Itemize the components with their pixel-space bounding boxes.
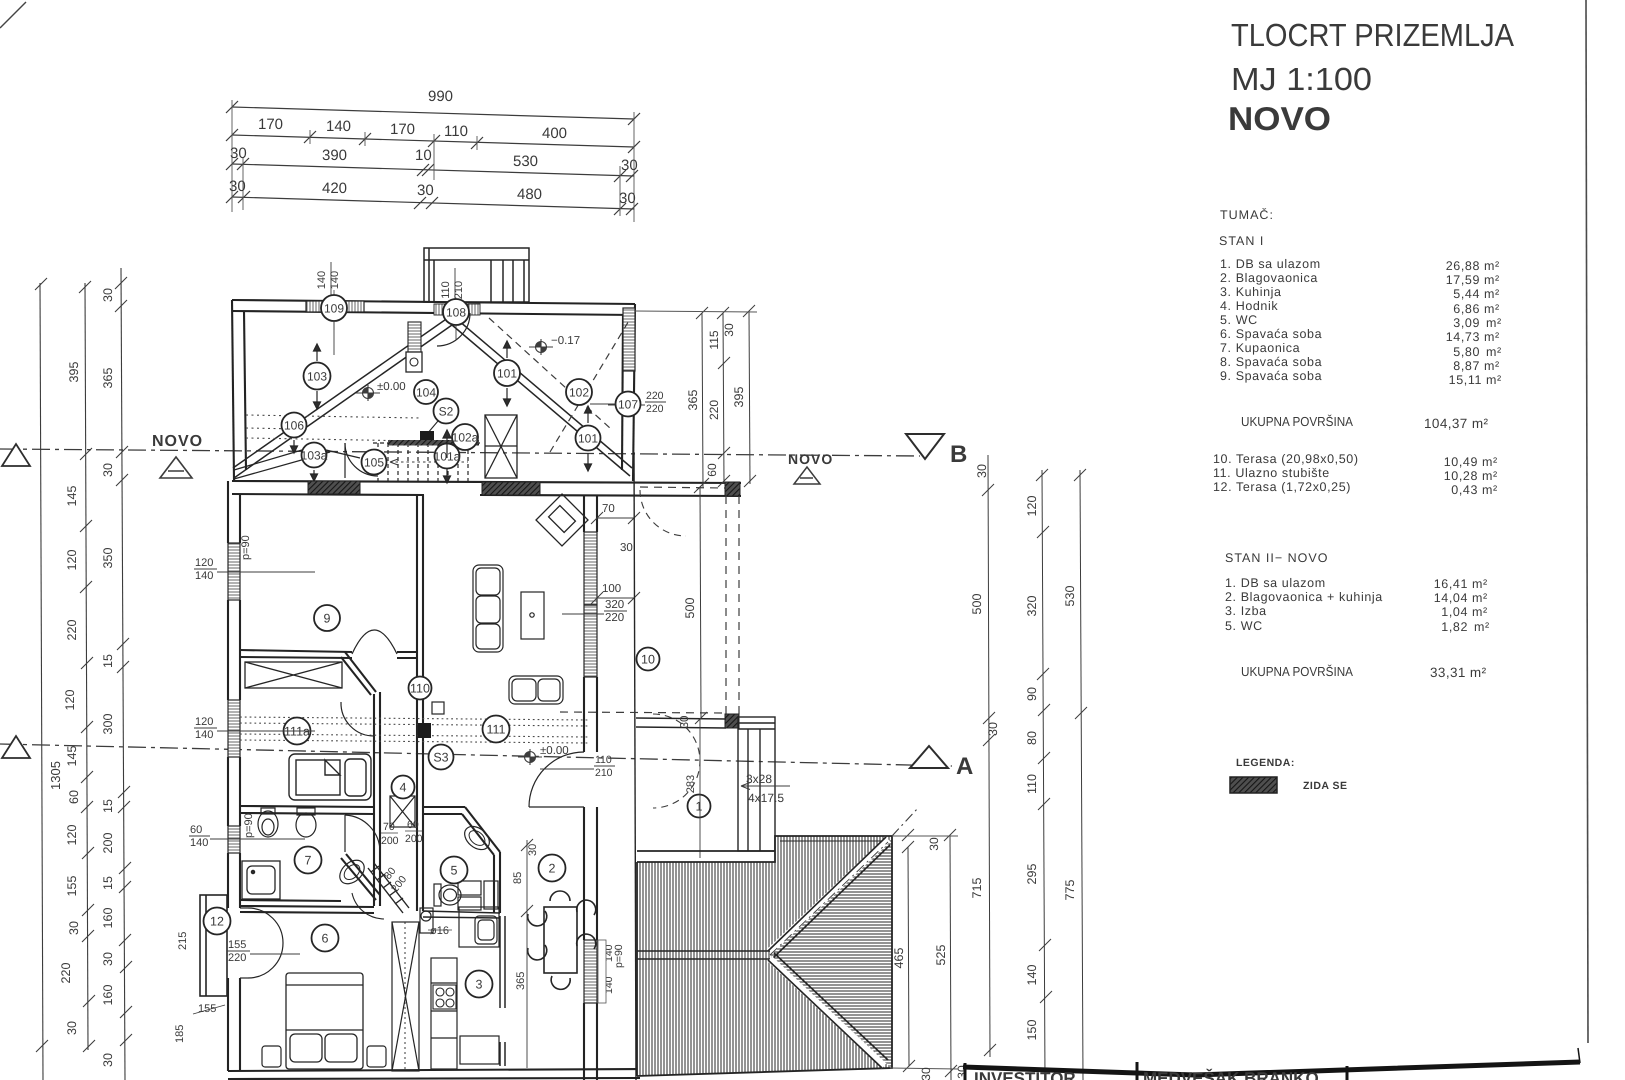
- svg-text:108: 108: [446, 306, 466, 320]
- svg-text:220: 220: [228, 952, 246, 964]
- svg-text:m²: m²: [1484, 287, 1500, 301]
- svg-text:S3: S3: [433, 751, 448, 765]
- svg-text:295: 295: [1025, 864, 1039, 885]
- svg-text:500: 500: [970, 594, 984, 615]
- svg-text:155: 155: [65, 876, 79, 897]
- svg-text:107: 107: [618, 398, 638, 412]
- svg-text:140: 140: [190, 837, 208, 849]
- svg-text:104,37 m²: 104,37 m²: [1424, 416, 1488, 431]
- svg-text:140: 140: [195, 729, 213, 741]
- svg-text:210: 210: [595, 767, 613, 779]
- svg-text:6. Spavaća soba: 6. Spavaća soba: [1220, 327, 1322, 341]
- svg-text:105: 105: [364, 456, 384, 470]
- svg-text:111a: 111a: [284, 725, 310, 739]
- svg-text:365: 365: [101, 368, 115, 389]
- svg-text:7: 7: [305, 854, 312, 868]
- svg-text:220: 220: [65, 620, 79, 641]
- svg-text:m²: m²: [1484, 273, 1500, 287]
- svg-text:5. WC: 5. WC: [1225, 619, 1263, 633]
- svg-text:200: 200: [405, 833, 423, 845]
- svg-text:30: 30: [101, 288, 115, 302]
- svg-text:3: 3: [476, 978, 483, 992]
- svg-text:70: 70: [602, 503, 615, 515]
- svg-text:NOVO: NOVO: [1228, 100, 1331, 137]
- svg-text:TUMAČ:: TUMAČ:: [1220, 208, 1274, 222]
- svg-text:4x17.5: 4x17.5: [748, 791, 784, 805]
- svg-text:140: 140: [326, 118, 351, 135]
- svg-text:−0.17: −0.17: [551, 335, 580, 347]
- svg-text:A: A: [956, 753, 973, 780]
- svg-text:30: 30: [65, 1021, 79, 1035]
- svg-text:NOVO: NOVO: [152, 433, 203, 450]
- svg-text:7. Kupaonica: 7. Kupaonica: [1220, 341, 1300, 355]
- svg-text:140: 140: [195, 570, 213, 582]
- svg-text:390: 390: [322, 147, 347, 164]
- svg-text:110: 110: [1025, 774, 1039, 794]
- svg-text:140: 140: [316, 271, 328, 289]
- svg-text:30: 30: [527, 844, 539, 856]
- svg-text:85: 85: [512, 872, 524, 884]
- svg-text:m²: m²: [1486, 373, 1502, 387]
- svg-text:220: 220: [59, 963, 73, 984]
- svg-text:106: 106: [284, 419, 304, 433]
- svg-text:1. DB sa ulazom: 1. DB sa ulazom: [1225, 576, 1326, 590]
- svg-text:480: 480: [517, 186, 542, 203]
- svg-text:12: 12: [210, 915, 224, 929]
- svg-text:m²: m²: [1472, 591, 1488, 605]
- svg-text:300: 300: [101, 714, 115, 735]
- svg-text:101: 101: [578, 432, 598, 446]
- svg-text:26,88: 26,88: [1446, 259, 1480, 273]
- svg-text:B: B: [950, 441, 967, 468]
- svg-text:1305: 1305: [48, 761, 63, 790]
- svg-text:30: 30: [101, 463, 115, 477]
- svg-text:145: 145: [65, 486, 79, 507]
- svg-text:30: 30: [101, 1053, 115, 1067]
- svg-text:m²: m²: [1472, 577, 1488, 591]
- svg-text:MEDVEŠAK BRANKO: MEDVEŠAK BRANKO: [1143, 1068, 1319, 1080]
- svg-text:525: 525: [934, 945, 948, 966]
- svg-text:155: 155: [228, 939, 246, 951]
- svg-text:30: 30: [417, 182, 434, 199]
- svg-text:30: 30: [722, 323, 736, 337]
- svg-text:30: 30: [975, 464, 989, 478]
- svg-text:p=90: p=90: [243, 813, 255, 838]
- svg-text:6,86: 6,86: [1453, 302, 1480, 316]
- svg-text:15,11: 15,11: [1449, 373, 1482, 387]
- svg-text:715: 715: [970, 878, 984, 899]
- svg-text:160: 160: [101, 908, 115, 929]
- svg-text:1,82: 1,82: [1441, 620, 1468, 634]
- svg-text:420: 420: [322, 180, 347, 197]
- svg-text:283: 283: [685, 775, 697, 793]
- svg-text:16,41: 16,41: [1434, 577, 1468, 591]
- svg-text:INVESTITOR: INVESTITOR: [974, 1069, 1076, 1080]
- svg-text:109: 109: [324, 302, 344, 316]
- svg-text:220: 220: [646, 403, 664, 415]
- svg-text:m²: m²: [1484, 302, 1500, 316]
- svg-text:120: 120: [65, 550, 79, 571]
- svg-text:200: 200: [381, 835, 399, 847]
- svg-text:UKUPNA POVRŠINA: UKUPNA POVRŠINA: [1241, 664, 1353, 679]
- svg-text:60: 60: [190, 824, 202, 836]
- svg-text:2: 2: [549, 862, 556, 876]
- svg-text:102: 102: [569, 386, 589, 400]
- svg-text:±0.00: ±0.00: [377, 381, 406, 393]
- svg-text:155: 155: [198, 1003, 216, 1015]
- svg-text:200: 200: [101, 833, 115, 854]
- svg-text:160: 160: [101, 985, 115, 1006]
- svg-text:m²: m²: [1484, 259, 1500, 273]
- svg-text:500: 500: [683, 598, 697, 619]
- svg-text:m²: m²: [1486, 345, 1502, 359]
- svg-text:5: 5: [451, 864, 458, 878]
- svg-text:110: 110: [595, 754, 612, 766]
- svg-text:30: 30: [621, 157, 638, 174]
- svg-text:8,87: 8,87: [1453, 359, 1480, 373]
- svg-text:150: 150: [1025, 1020, 1039, 1041]
- svg-text:MJ 1:100: MJ 1:100: [1231, 61, 1372, 97]
- svg-text:30: 30: [927, 837, 941, 851]
- svg-text:30: 30: [679, 716, 691, 729]
- svg-text:0,43: 0,43: [1451, 483, 1478, 497]
- svg-text:1,04: 1,04: [1441, 605, 1468, 619]
- svg-text:395: 395: [67, 362, 81, 383]
- svg-text:TLOCRT PRIZEMLJA: TLOCRT PRIZEMLJA: [1231, 17, 1515, 53]
- svg-text:102a: 102a: [452, 431, 479, 445]
- svg-text:70: 70: [383, 821, 395, 833]
- svg-text:10: 10: [415, 147, 432, 164]
- svg-text:30: 30: [229, 178, 246, 195]
- svg-text:30: 30: [101, 952, 115, 966]
- svg-text:4. Hodnik: 4. Hodnik: [1220, 299, 1278, 313]
- svg-text:9. Spavaća soba: 9. Spavaća soba: [1220, 369, 1322, 383]
- svg-text:5,44: 5,44: [1453, 287, 1480, 301]
- svg-text:2. Blagovaonica: 2. Blagovaonica: [1220, 271, 1318, 285]
- svg-text:m²: m²: [1486, 316, 1502, 330]
- svg-text:m²: m²: [1482, 469, 1498, 483]
- svg-text:215: 215: [177, 932, 189, 950]
- svg-text:10: 10: [641, 653, 655, 667]
- svg-text:STAN I: STAN I: [1219, 234, 1264, 248]
- svg-text:103a: 103a: [301, 449, 328, 463]
- svg-text:m²: m²: [1484, 330, 1500, 344]
- svg-text:p=90: p=90: [613, 944, 625, 968]
- svg-text:3x28: 3x28: [746, 772, 772, 786]
- svg-text:m²: m²: [1482, 483, 1498, 497]
- svg-text:400: 400: [542, 125, 567, 142]
- svg-text:9: 9: [324, 612, 331, 626]
- svg-text:120: 120: [195, 716, 213, 728]
- svg-text:395: 395: [732, 387, 746, 408]
- svg-text:140: 140: [1025, 965, 1039, 986]
- svg-text:103: 103: [307, 370, 327, 384]
- svg-text:60: 60: [705, 463, 719, 477]
- svg-text:111: 111: [486, 723, 505, 737]
- svg-text:10. Terasa (20,98x0,50): 10. Terasa (20,98x0,50): [1213, 452, 1359, 466]
- svg-text:8. Spavaća soba: 8. Spavaća soba: [1220, 355, 1322, 369]
- svg-text:UKUPNA POVRŠINA: UKUPNA POVRŠINA: [1241, 414, 1353, 429]
- svg-text:320: 320: [1025, 596, 1039, 617]
- svg-text:120: 120: [195, 557, 213, 569]
- svg-text:220: 220: [707, 400, 721, 420]
- svg-text:6: 6: [322, 932, 329, 946]
- svg-text:33,31 m²: 33,31 m²: [1430, 665, 1487, 680]
- svg-text:90: 90: [1025, 687, 1039, 701]
- svg-text:ZIDA SE: ZIDA SE: [1303, 780, 1348, 792]
- svg-text:100: 100: [602, 583, 621, 595]
- svg-text:185: 185: [174, 1025, 186, 1043]
- svg-text:365: 365: [686, 390, 700, 411]
- svg-text:990: 990: [428, 88, 453, 105]
- svg-text:60: 60: [407, 819, 419, 831]
- svg-text:145: 145: [65, 746, 79, 767]
- svg-text:530: 530: [513, 153, 538, 170]
- svg-text:465: 465: [892, 948, 906, 969]
- svg-text:LEGENDA:: LEGENDA:: [1236, 757, 1295, 769]
- svg-text:80: 80: [1025, 731, 1039, 745]
- svg-text:10,28: 10,28: [1444, 469, 1478, 483]
- svg-text:5,80: 5,80: [1453, 345, 1480, 359]
- svg-text:11. Ulazno stubište: 11. Ulazno stubište: [1213, 466, 1330, 480]
- svg-text:120: 120: [1025, 496, 1039, 517]
- svg-text:775: 775: [1063, 880, 1077, 901]
- svg-text:220: 220: [605, 612, 624, 624]
- svg-text:12. Terasa (1,72x0,25): 12. Terasa (1,72x0,25): [1213, 480, 1351, 494]
- svg-text:NOVO: NOVO: [788, 451, 833, 467]
- svg-text:350: 350: [101, 548, 115, 569]
- svg-text:530: 530: [1063, 586, 1077, 607]
- svg-text:3. Izba: 3. Izba: [1225, 604, 1267, 618]
- svg-text:ø16: ø16: [430, 925, 449, 937]
- svg-text:30: 30: [619, 190, 636, 207]
- svg-text:220: 220: [646, 390, 664, 402]
- svg-text:STAN II− NOVO: STAN II− NOVO: [1225, 551, 1328, 565]
- svg-text:17,59: 17,59: [1446, 273, 1480, 287]
- svg-text:m²: m²: [1484, 359, 1500, 373]
- svg-text:10,49: 10,49: [1444, 455, 1478, 469]
- svg-text:m²: m²: [1482, 455, 1498, 469]
- svg-text:110: 110: [440, 281, 452, 299]
- svg-text:5. WC: 5. WC: [1220, 313, 1258, 327]
- svg-text:1. DB sa ulazom: 1. DB sa ulazom: [1220, 257, 1321, 271]
- svg-text:60: 60: [67, 790, 81, 804]
- svg-text:104: 104: [416, 386, 436, 400]
- svg-text:120: 120: [65, 825, 79, 846]
- svg-text:1: 1: [696, 800, 703, 814]
- svg-text:m²: m²: [1472, 605, 1488, 619]
- svg-text:14,73: 14,73: [1446, 330, 1480, 344]
- svg-text:170: 170: [258, 116, 283, 133]
- svg-text:110: 110: [410, 682, 430, 696]
- svg-text:±0.00: ±0.00: [540, 745, 569, 757]
- svg-text:4: 4: [400, 781, 407, 795]
- svg-text:170: 170: [390, 121, 415, 138]
- svg-text:m²: m²: [1474, 620, 1490, 634]
- svg-text:2. Blagovaonica + kuhinja: 2. Blagovaonica + kuhinja: [1225, 590, 1383, 604]
- svg-text:30: 30: [986, 722, 1000, 736]
- svg-text:15: 15: [101, 799, 115, 813]
- svg-text:15: 15: [101, 876, 115, 890]
- svg-text:320: 320: [605, 599, 624, 611]
- svg-text:14,04: 14,04: [1434, 591, 1468, 605]
- svg-text:30: 30: [67, 921, 81, 935]
- svg-text:3,09: 3,09: [1453, 316, 1480, 330]
- svg-text:365: 365: [515, 972, 527, 990]
- svg-text:30: 30: [919, 1067, 933, 1080]
- svg-text:3. Kuhinja: 3. Kuhinja: [1220, 285, 1282, 299]
- svg-text:S2: S2: [439, 405, 454, 419]
- svg-text:15: 15: [101, 654, 115, 668]
- svg-text:120: 120: [63, 690, 77, 711]
- svg-text:110: 110: [444, 123, 468, 140]
- svg-text:30: 30: [230, 145, 247, 162]
- svg-text:101: 101: [497, 367, 517, 381]
- svg-text:30: 30: [620, 542, 633, 554]
- svg-text:115: 115: [707, 330, 721, 349]
- svg-text:p=90: p=90: [240, 535, 252, 560]
